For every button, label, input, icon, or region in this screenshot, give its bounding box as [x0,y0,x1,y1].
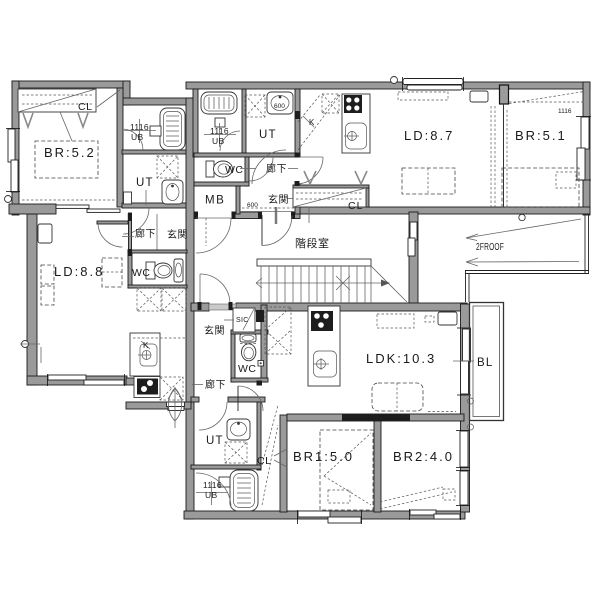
svg-text:1116: 1116 [203,480,222,490]
svg-text:階段室: 階段室 [295,236,330,250]
svg-text:K: K [143,341,149,350]
svg-text:LD:8.8: LD:8.8 [54,264,104,279]
svg-text:WC: WC [225,164,244,176]
svg-text:SIC: SIC [236,317,249,324]
svg-text:UT: UT [206,435,224,447]
svg-text:1116: 1116 [130,122,149,132]
svg-text:UB: UB [212,136,224,146]
svg-text:K: K [309,118,315,127]
svg-text:LDK:10.3: LDK:10.3 [366,351,436,366]
svg-text:UT: UT [136,177,154,189]
svg-text:BR2:4.0: BR2:4.0 [393,449,454,464]
svg-text:玄関: 玄関 [204,324,225,337]
svg-text:WC: WC [132,267,151,279]
svg-text:BL: BL [477,357,493,369]
svg-text:CL: CL [78,101,92,113]
svg-text:UT: UT [259,129,277,141]
svg-text:1116: 1116 [558,108,572,115]
svg-text:2FROOF: 2FROOF [476,242,504,253]
svg-text:CL: CL [348,200,363,212]
svg-text:BR1:5.0: BR1:5.0 [293,449,354,464]
svg-text:UB: UB [205,490,217,500]
svg-text:BR:5.1: BR:5.1 [515,128,567,143]
svg-text:廊下: 廊下 [266,162,287,175]
svg-text:UB: UB [131,132,143,142]
svg-text:1116: 1116 [210,126,229,136]
svg-text:600: 600 [274,103,285,110]
svg-text:廊下: 廊下 [135,227,156,240]
svg-text:廊下: 廊下 [205,378,226,391]
svg-text:WC: WC [238,363,257,375]
svg-text:LD:8.7: LD:8.7 [404,128,454,143]
svg-text:MB: MB [205,195,225,207]
svg-text:CL: CL [257,455,271,467]
svg-text:玄関: 玄関 [268,193,289,206]
svg-text:BR:5.2: BR:5.2 [44,145,96,160]
svg-text:玄関: 玄関 [167,228,188,241]
svg-text:600: 600 [247,202,258,209]
